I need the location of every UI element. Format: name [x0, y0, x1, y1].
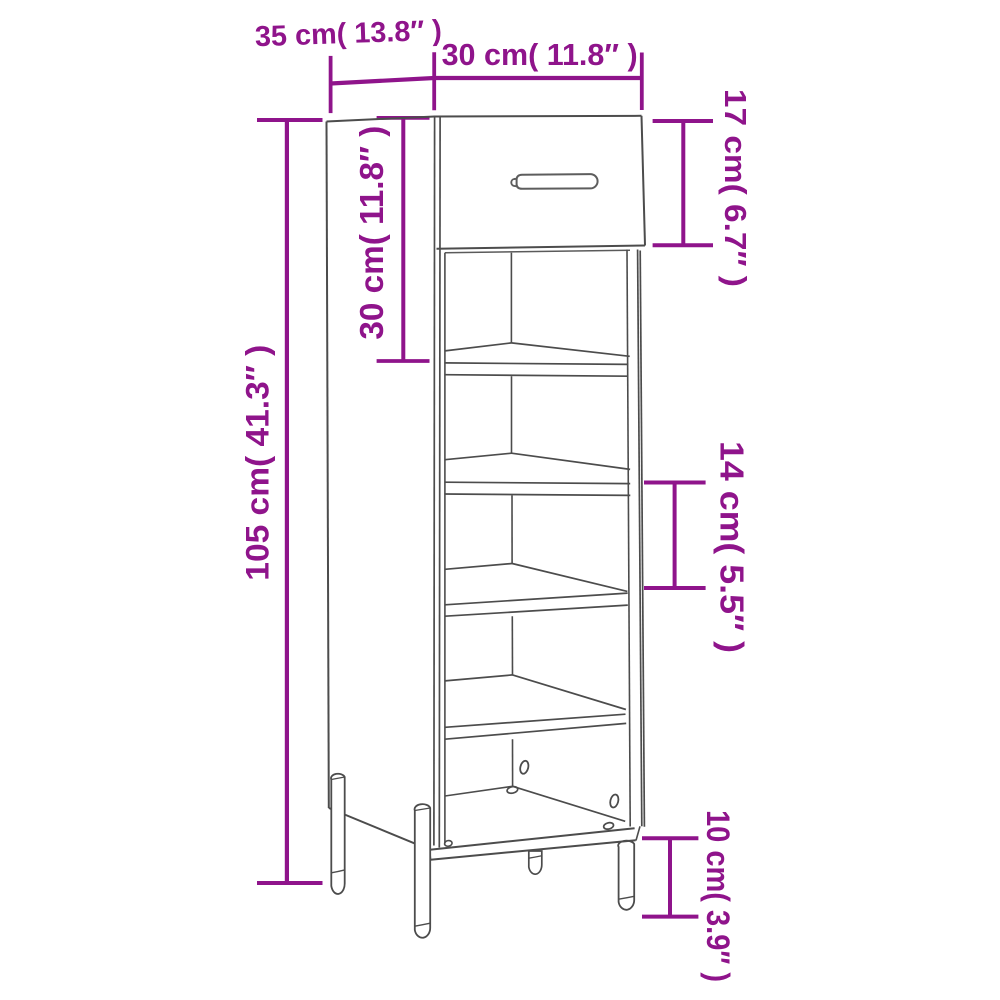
svg-text:35 cm( 13.8″ ): 35 cm( 13.8″ ) — [254, 15, 442, 54]
svg-text:10 cm( 3.9″ ): 10 cm( 3.9″ ) — [700, 810, 736, 982]
svg-text:30 cm( 11.8″ ): 30 cm( 11.8″ ) — [353, 126, 390, 340]
svg-text:14 cm( 5.5″ ): 14 cm( 5.5″ ) — [714, 441, 751, 653]
svg-text:105 cm( 41.3″ ): 105 cm( 41.3″ ) — [240, 345, 276, 581]
svg-text:17 cm( 6.7″ ): 17 cm( 6.7″ ) — [718, 89, 753, 287]
svg-text:30 cm( 11.8″ ): 30 cm( 11.8″ ) — [442, 37, 638, 72]
